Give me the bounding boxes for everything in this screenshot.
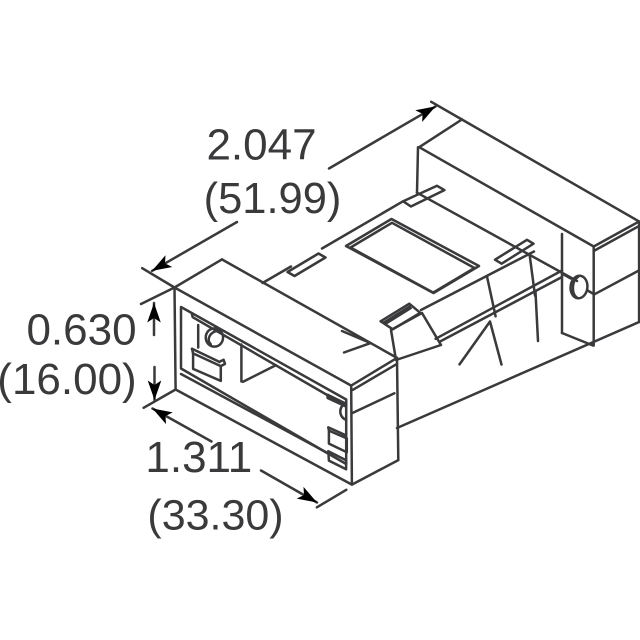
svg-text:2.047: 2.047: [206, 121, 316, 170]
svg-text:(16.00): (16.00): [0, 355, 137, 404]
svg-text:1.311: 1.311: [145, 433, 252, 482]
svg-text:0.630: 0.630: [26, 306, 136, 355]
svg-text:(51.99): (51.99): [204, 175, 342, 223]
svg-text:(33.30): (33.30): [147, 492, 283, 540]
